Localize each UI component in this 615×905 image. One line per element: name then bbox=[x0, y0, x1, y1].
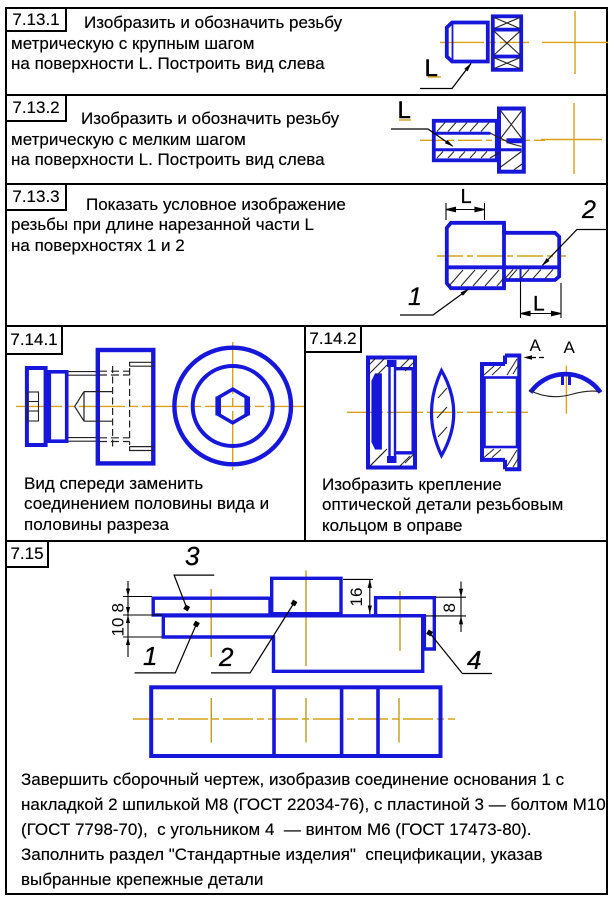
svg-text:L: L bbox=[398, 97, 411, 124]
svg-text:L: L bbox=[533, 293, 545, 316]
svg-text:8: 8 bbox=[440, 603, 459, 612]
svg-text:16: 16 bbox=[347, 588, 366, 607]
svg-text:L: L bbox=[461, 186, 472, 208]
svg-text:2: 2 bbox=[581, 196, 596, 224]
svg-text:10: 10 bbox=[109, 618, 128, 637]
svg-text:L: L bbox=[425, 55, 438, 82]
svg-text:4: 4 bbox=[467, 645, 481, 675]
svg-text:А: А bbox=[564, 338, 576, 357]
svg-text:8: 8 bbox=[109, 603, 128, 612]
svg-text:1: 1 bbox=[408, 283, 422, 311]
svg-text:А: А bbox=[530, 336, 542, 355]
svg-text:3: 3 bbox=[185, 541, 200, 571]
svg-text:2: 2 bbox=[218, 642, 234, 672]
svg-text:1: 1 bbox=[143, 641, 157, 671]
